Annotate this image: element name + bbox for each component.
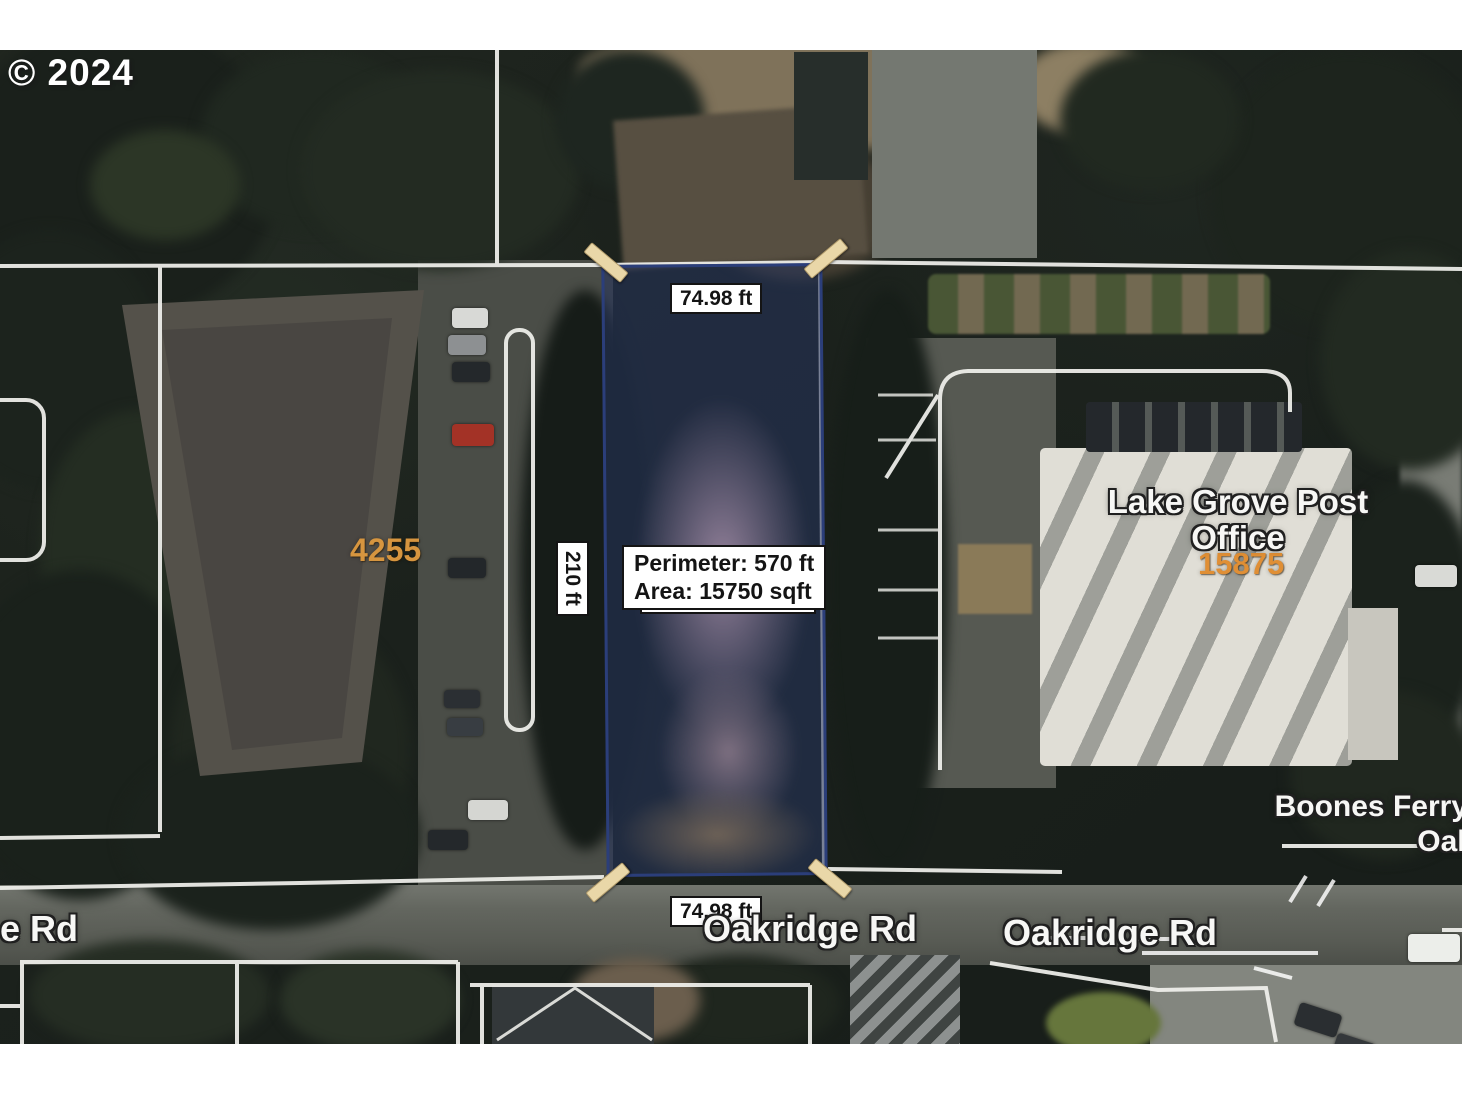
screenshot-root: 74.98 ft 210 ft Perimeter: 570 ft Area: … [0,0,1462,1096]
area-value: Area: 15750 sqft [634,578,814,606]
measurement-side-depth: 210 ft [556,541,589,616]
poi-label-post-office: Lake Grove Post Office [1088,484,1388,557]
street-label-left-partial: e Rd [0,908,78,950]
copyright-watermark: © 2024 [8,52,134,94]
measurement-top-width: 74.98 ft [670,283,762,314]
address-label-4255: 4255 [350,532,421,569]
street-label-oakridge-center: Oakridge Rd [703,908,917,950]
measurement-summary: Perimeter: 570 ft Area: 15750 sqft [622,545,826,610]
street-label-boones-ferry: Boones Ferry Oak [1228,790,1462,859]
satellite-map[interactable]: 74.98 ft 210 ft Perimeter: 570 ft Area: … [0,50,1462,1044]
perimeter-value: Perimeter: 570 ft [634,550,814,578]
street-label-oakridge-right: Oakridge Rd [1003,912,1217,954]
